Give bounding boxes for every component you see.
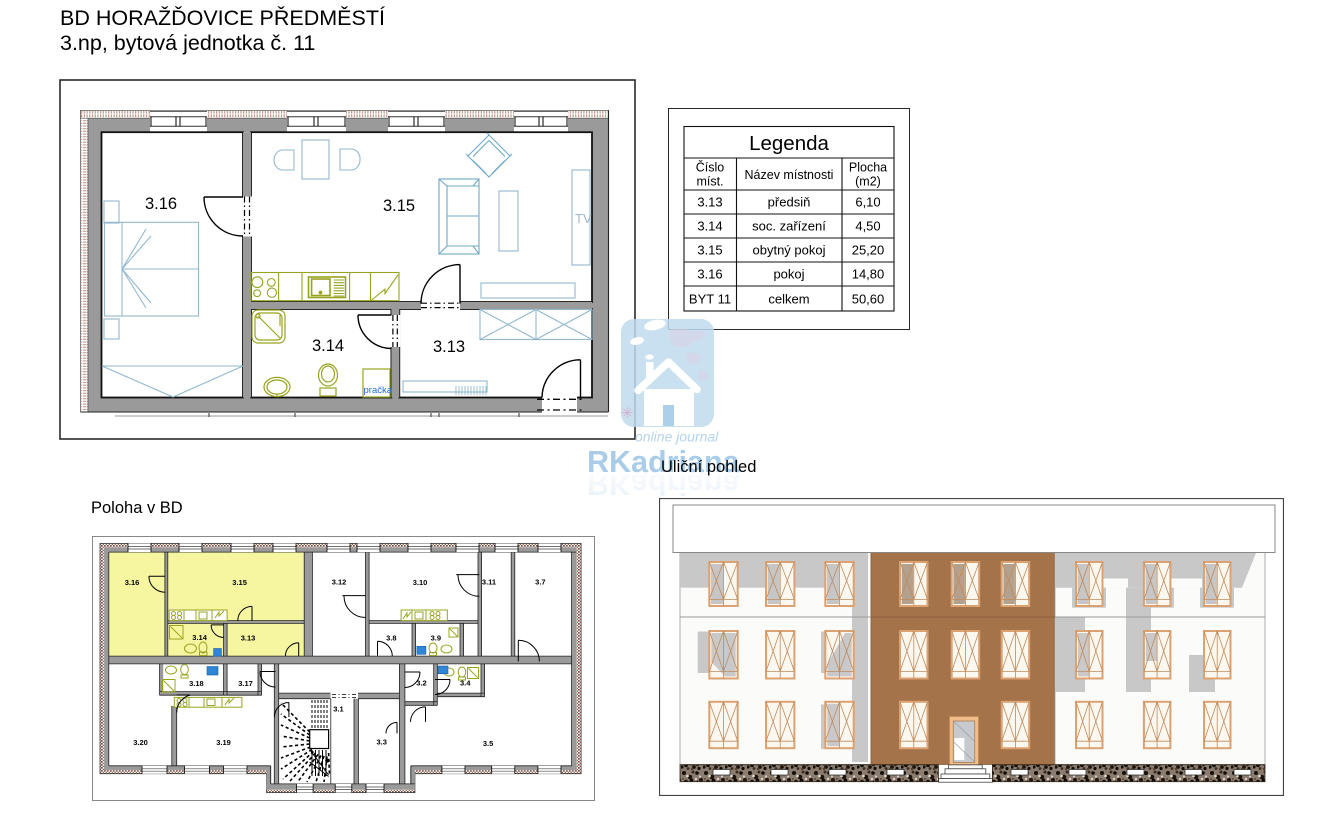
svg-text:3.2: 3.2 [416, 678, 426, 687]
svg-text:3.14: 3.14 [312, 337, 344, 355]
svg-text:3.15: 3.15 [383, 197, 415, 215]
svg-text:✳: ✳ [621, 405, 634, 422]
svg-text:3.1: 3.1 [333, 704, 343, 713]
svg-text:(m2): (m2) [855, 175, 881, 189]
svg-text:3.14: 3.14 [192, 633, 207, 642]
svg-text:3.7: 3.7 [535, 578, 545, 587]
svg-text:obytný pokoj: obytný pokoj [753, 243, 826, 258]
svg-text:Legenda: Legenda [749, 132, 829, 155]
svg-text:50,60: 50,60 [852, 292, 885, 307]
svg-text:3.8: 3.8 [386, 633, 396, 642]
svg-text:online journal: online journal [635, 429, 719, 445]
svg-text:3.9: 3.9 [431, 633, 441, 642]
svg-text:3.5: 3.5 [483, 739, 493, 748]
svg-text:3.13: 3.13 [697, 195, 722, 210]
svg-text:3.4: 3.4 [460, 679, 471, 688]
svg-text:3.17: 3.17 [238, 679, 253, 688]
svg-text:pokoj: pokoj [773, 267, 804, 282]
svg-text:3.16: 3.16 [125, 578, 140, 587]
svg-text:3.10: 3.10 [413, 578, 428, 587]
svg-text:TV: TV [575, 211, 592, 226]
svg-text:3.3: 3.3 [376, 737, 386, 746]
svg-text:předsiň: předsiň [768, 195, 811, 210]
svg-text:Název místnosti: Název místnosti [745, 168, 834, 182]
svg-text:Číslo: Číslo [696, 160, 725, 175]
svg-text:Plocha: Plocha [849, 161, 887, 175]
svg-text:6,10: 6,10 [855, 195, 880, 210]
svg-text:3.13: 3.13 [241, 634, 256, 643]
svg-text:3.14: 3.14 [697, 219, 722, 234]
svg-text:3.20: 3.20 [133, 738, 148, 747]
svg-text:3.13: 3.13 [433, 338, 465, 356]
svg-text:míst.: míst. [696, 175, 723, 189]
svg-text:3.15: 3.15 [697, 243, 722, 258]
svg-text:3.18: 3.18 [189, 679, 204, 688]
svg-text:3.16: 3.16 [697, 267, 722, 282]
svg-text:3.15: 3.15 [232, 578, 247, 587]
svg-text:pračka: pračka [364, 385, 393, 396]
svg-text:3.19: 3.19 [216, 738, 231, 747]
svg-text:3.11: 3.11 [482, 578, 496, 587]
svg-text:soc. zařízení: soc. zařízení [752, 219, 826, 234]
svg-text:3.12: 3.12 [332, 578, 347, 587]
svg-text:25,20: 25,20 [852, 243, 885, 258]
svg-text:3.16: 3.16 [145, 195, 177, 213]
svg-text:14,80: 14,80 [852, 267, 885, 282]
svg-text:4,50: 4,50 [855, 219, 880, 234]
